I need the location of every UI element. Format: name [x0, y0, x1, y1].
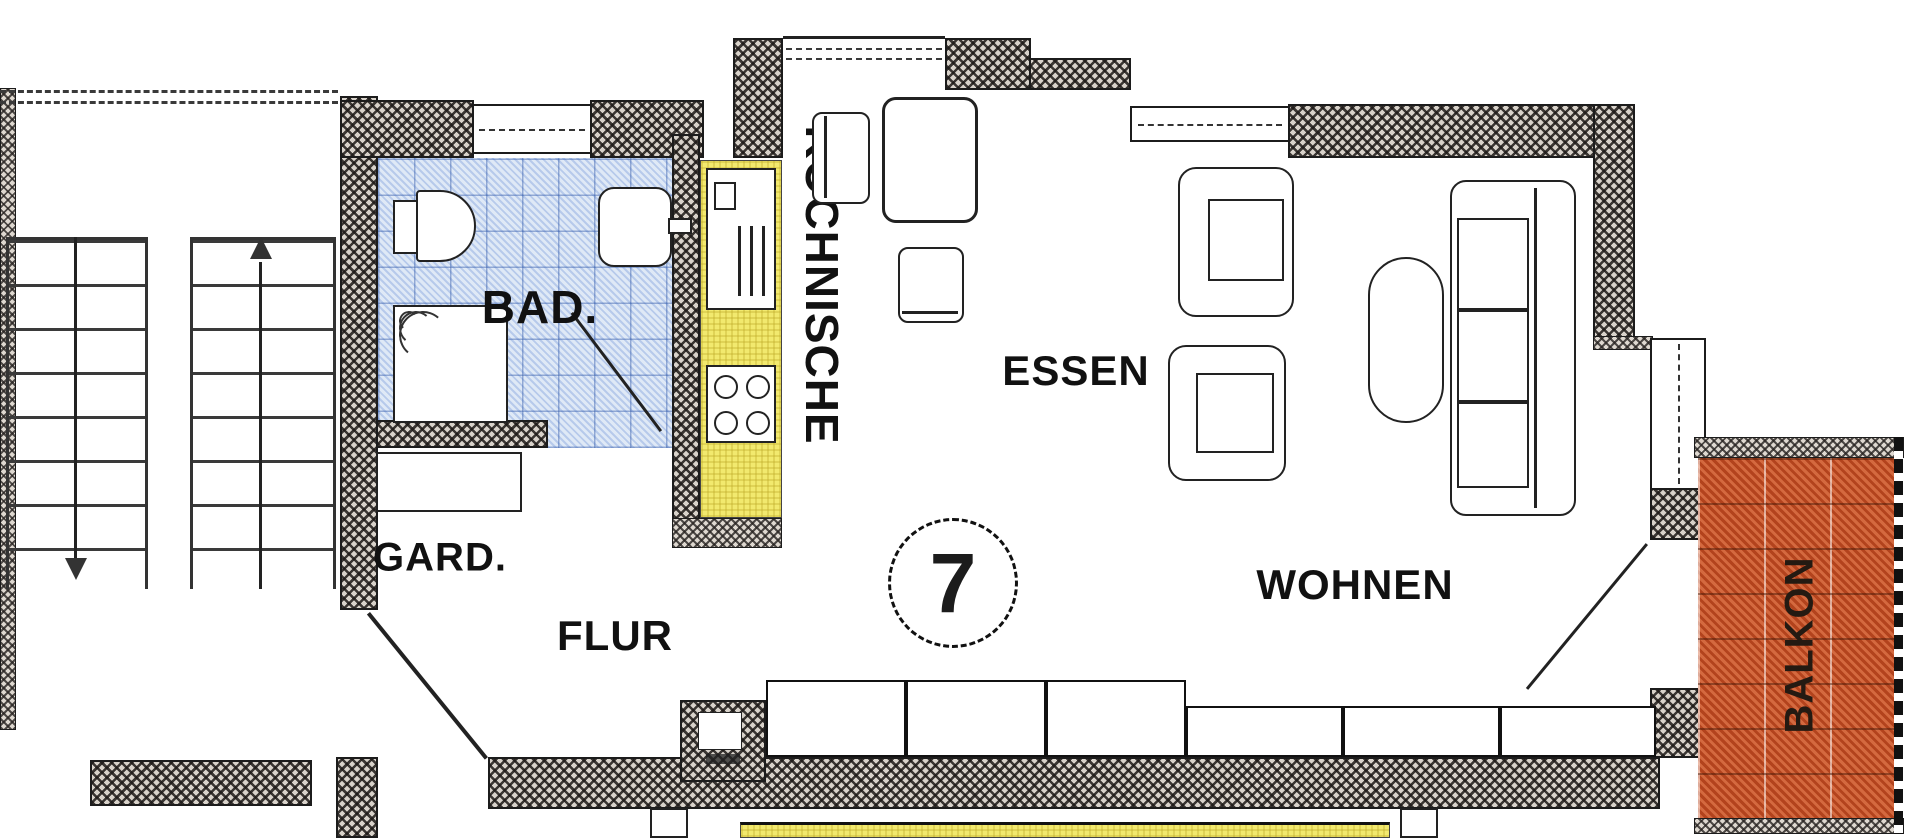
dining-table — [882, 97, 978, 223]
armchair-bottom — [1168, 345, 1286, 481]
built-in-closet — [906, 680, 1046, 757]
chair-back-line-2 — [902, 311, 958, 314]
built-in-closet — [1046, 680, 1186, 757]
stair-flight-up-stringer — [259, 262, 262, 589]
sink-drainer-line-2 — [750, 226, 753, 296]
sofa-back-line — [1534, 188, 1537, 508]
service-shaft — [680, 700, 766, 782]
stove-burner-icon — [714, 375, 738, 399]
unit-number-badge: 7 — [888, 518, 1018, 648]
balcony-door-leaf — [1526, 543, 1648, 690]
room-label-flur: FLUR — [557, 612, 673, 660]
balcony-right-edge — [1894, 437, 1903, 834]
top-wall-bath-left — [340, 100, 474, 158]
built-in-closet — [1500, 706, 1656, 757]
kitchen-sink-unit — [706, 168, 776, 310]
room-label-essen: ESSEN — [1002, 347, 1149, 395]
lower-unit-wall-stub — [650, 808, 688, 838]
stair-flight-down-stringer — [74, 237, 77, 559]
stair-arrow-up-icon — [250, 237, 272, 259]
top-wall-block-a — [945, 38, 1031, 90]
right-wall-upper — [1593, 104, 1635, 344]
built-in-closet — [1343, 706, 1500, 757]
niche-top-edge-line — [783, 36, 945, 39]
bath-window — [472, 104, 592, 154]
bottom-wall-landing — [90, 760, 312, 806]
kitchen-bottom-stub-wall — [672, 518, 782, 548]
sofa-seat-2 — [1457, 310, 1529, 402]
stair-flight-down — [6, 237, 148, 589]
wardrobe-shelf — [376, 452, 522, 512]
bottom-wall-stub-vertical — [336, 757, 378, 838]
stair-arrow-down-icon — [65, 558, 87, 580]
room-label-gard: GARD. — [373, 536, 507, 581]
sink-drainer-line-3 — [762, 226, 765, 296]
washbasin-icon — [598, 187, 672, 267]
room-label-balkon: BALKON — [1778, 556, 1823, 733]
niche-opening-dashed-2 — [786, 58, 942, 60]
balcony-bottom-band — [1694, 818, 1904, 834]
right-wall-jog — [1593, 336, 1653, 350]
entrance-door-leaf — [367, 612, 488, 760]
lower-unit-wall-stub-2 — [1400, 808, 1438, 838]
bath-bottom-wall — [376, 420, 548, 448]
sofa-seat-3 — [1457, 402, 1529, 488]
chair-back-line — [824, 116, 827, 198]
stove-burner-icon-4 — [746, 411, 770, 435]
bath-kitchen-dividing-wall — [672, 134, 700, 520]
top-wall-right — [1288, 104, 1595, 158]
stairwell-landing-dashed-line — [0, 90, 338, 93]
sink-drainer-line-1 — [738, 226, 741, 296]
lower-unit-yellow-strip — [740, 822, 1390, 838]
kitchen-faucet-icon — [714, 182, 736, 210]
room-label-bad: BAD. — [482, 280, 598, 334]
stove-unit — [706, 365, 776, 443]
stairwell-landing-dashed-line-2 — [0, 101, 338, 104]
balcony-top-band — [1694, 437, 1904, 458]
apartment-left-wall — [340, 96, 378, 610]
armchair-cushion-2 — [1196, 373, 1274, 453]
built-in-closet — [1186, 706, 1343, 757]
washbasin-tap — [668, 218, 692, 234]
room-label-wohnen: WOHNEN — [1256, 561, 1453, 609]
shaft-mark — [706, 754, 740, 764]
dining-window — [1130, 106, 1290, 142]
dining-chair-left — [812, 112, 870, 204]
sofa-seat-1 — [1457, 218, 1529, 310]
armchair-top — [1178, 167, 1294, 317]
floor-plan: BAD. KOCHNISCHE ESSEN WOHNEN GARD. — [0, 0, 1920, 838]
shower-spray-arc-3 — [397, 309, 448, 360]
kitchen-niche-wall-column — [733, 38, 783, 158]
armchair-cushion — [1208, 199, 1284, 281]
sofa — [1450, 180, 1576, 516]
stove-burner-icon-3 — [714, 411, 738, 435]
bottom-wall-main — [488, 757, 1660, 809]
unit-number: 7 — [930, 535, 977, 632]
niche-opening-dashed-1 — [786, 48, 942, 50]
top-wall-block-b — [1029, 58, 1131, 90]
dining-chair-bottom — [898, 247, 964, 323]
stair-flight-up — [190, 237, 336, 589]
coffee-table — [1368, 257, 1444, 423]
built-in-closet — [766, 680, 906, 757]
stove-burner-icon-2 — [746, 375, 770, 399]
